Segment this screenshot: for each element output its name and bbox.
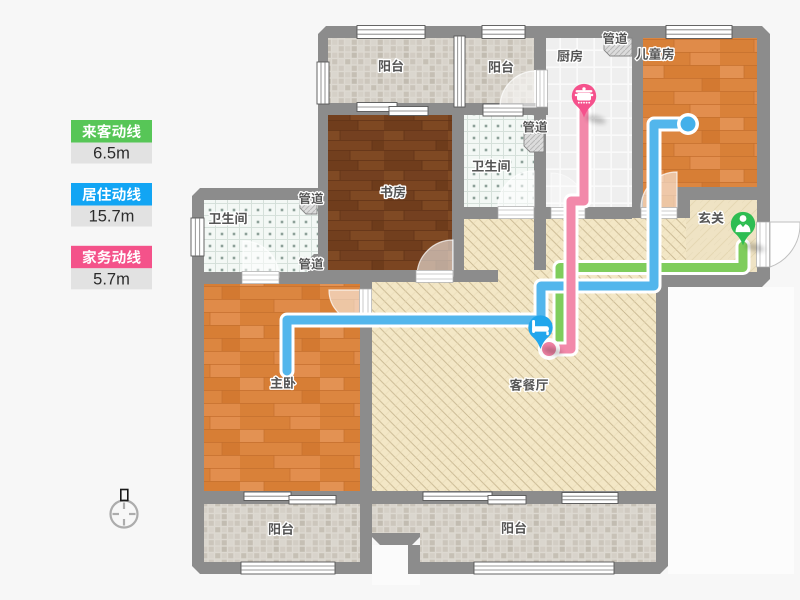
svg-text:15.7m: 15.7m <box>89 208 135 226</box>
svg-text:6.5m: 6.5m <box>93 145 130 163</box>
svg-text:5.7m: 5.7m <box>93 270 130 288</box>
